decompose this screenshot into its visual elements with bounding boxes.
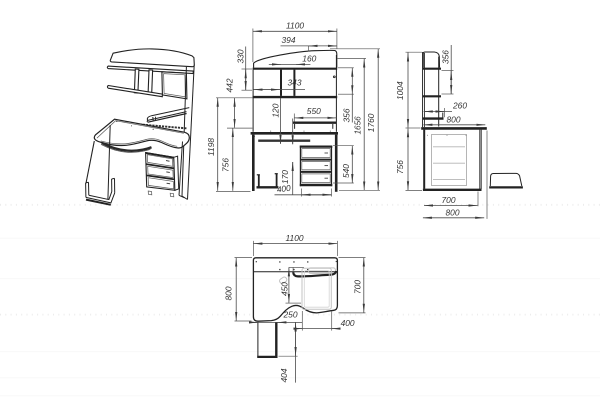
svg-text:442: 442: [225, 78, 235, 92]
svg-text:260: 260: [452, 101, 467, 111]
svg-text:800: 800: [446, 207, 460, 217]
svg-text:400: 400: [341, 318, 355, 328]
svg-text:394: 394: [282, 35, 296, 45]
svg-text:450: 450: [280, 282, 290, 296]
svg-text:540: 540: [341, 164, 351, 178]
svg-text:1198: 1198: [206, 138, 216, 156]
svg-text:250: 250: [283, 309, 298, 319]
svg-text:1656: 1656: [353, 116, 362, 135]
svg-text:356: 356: [440, 50, 450, 64]
svg-text:700: 700: [442, 195, 456, 205]
svg-text:356: 356: [342, 108, 352, 122]
svg-text:800: 800: [447, 114, 461, 124]
svg-text:343: 343: [288, 77, 302, 87]
svg-text:756: 756: [221, 158, 231, 172]
svg-text:550: 550: [307, 106, 321, 116]
svg-text:1100: 1100: [286, 21, 304, 31]
svg-text:120: 120: [270, 103, 280, 117]
svg-text:170: 170: [280, 170, 290, 184]
svg-text:1100: 1100: [286, 233, 304, 243]
svg-text:160: 160: [302, 54, 316, 64]
svg-text:756: 756: [395, 160, 405, 174]
svg-text:800: 800: [224, 286, 234, 300]
svg-text:330: 330: [236, 49, 246, 63]
svg-text:700: 700: [353, 280, 363, 294]
svg-text:400: 400: [276, 183, 292, 195]
svg-text:404: 404: [279, 368, 289, 382]
svg-text:1004: 1004: [395, 81, 405, 100]
svg-text:1760: 1760: [366, 113, 376, 132]
